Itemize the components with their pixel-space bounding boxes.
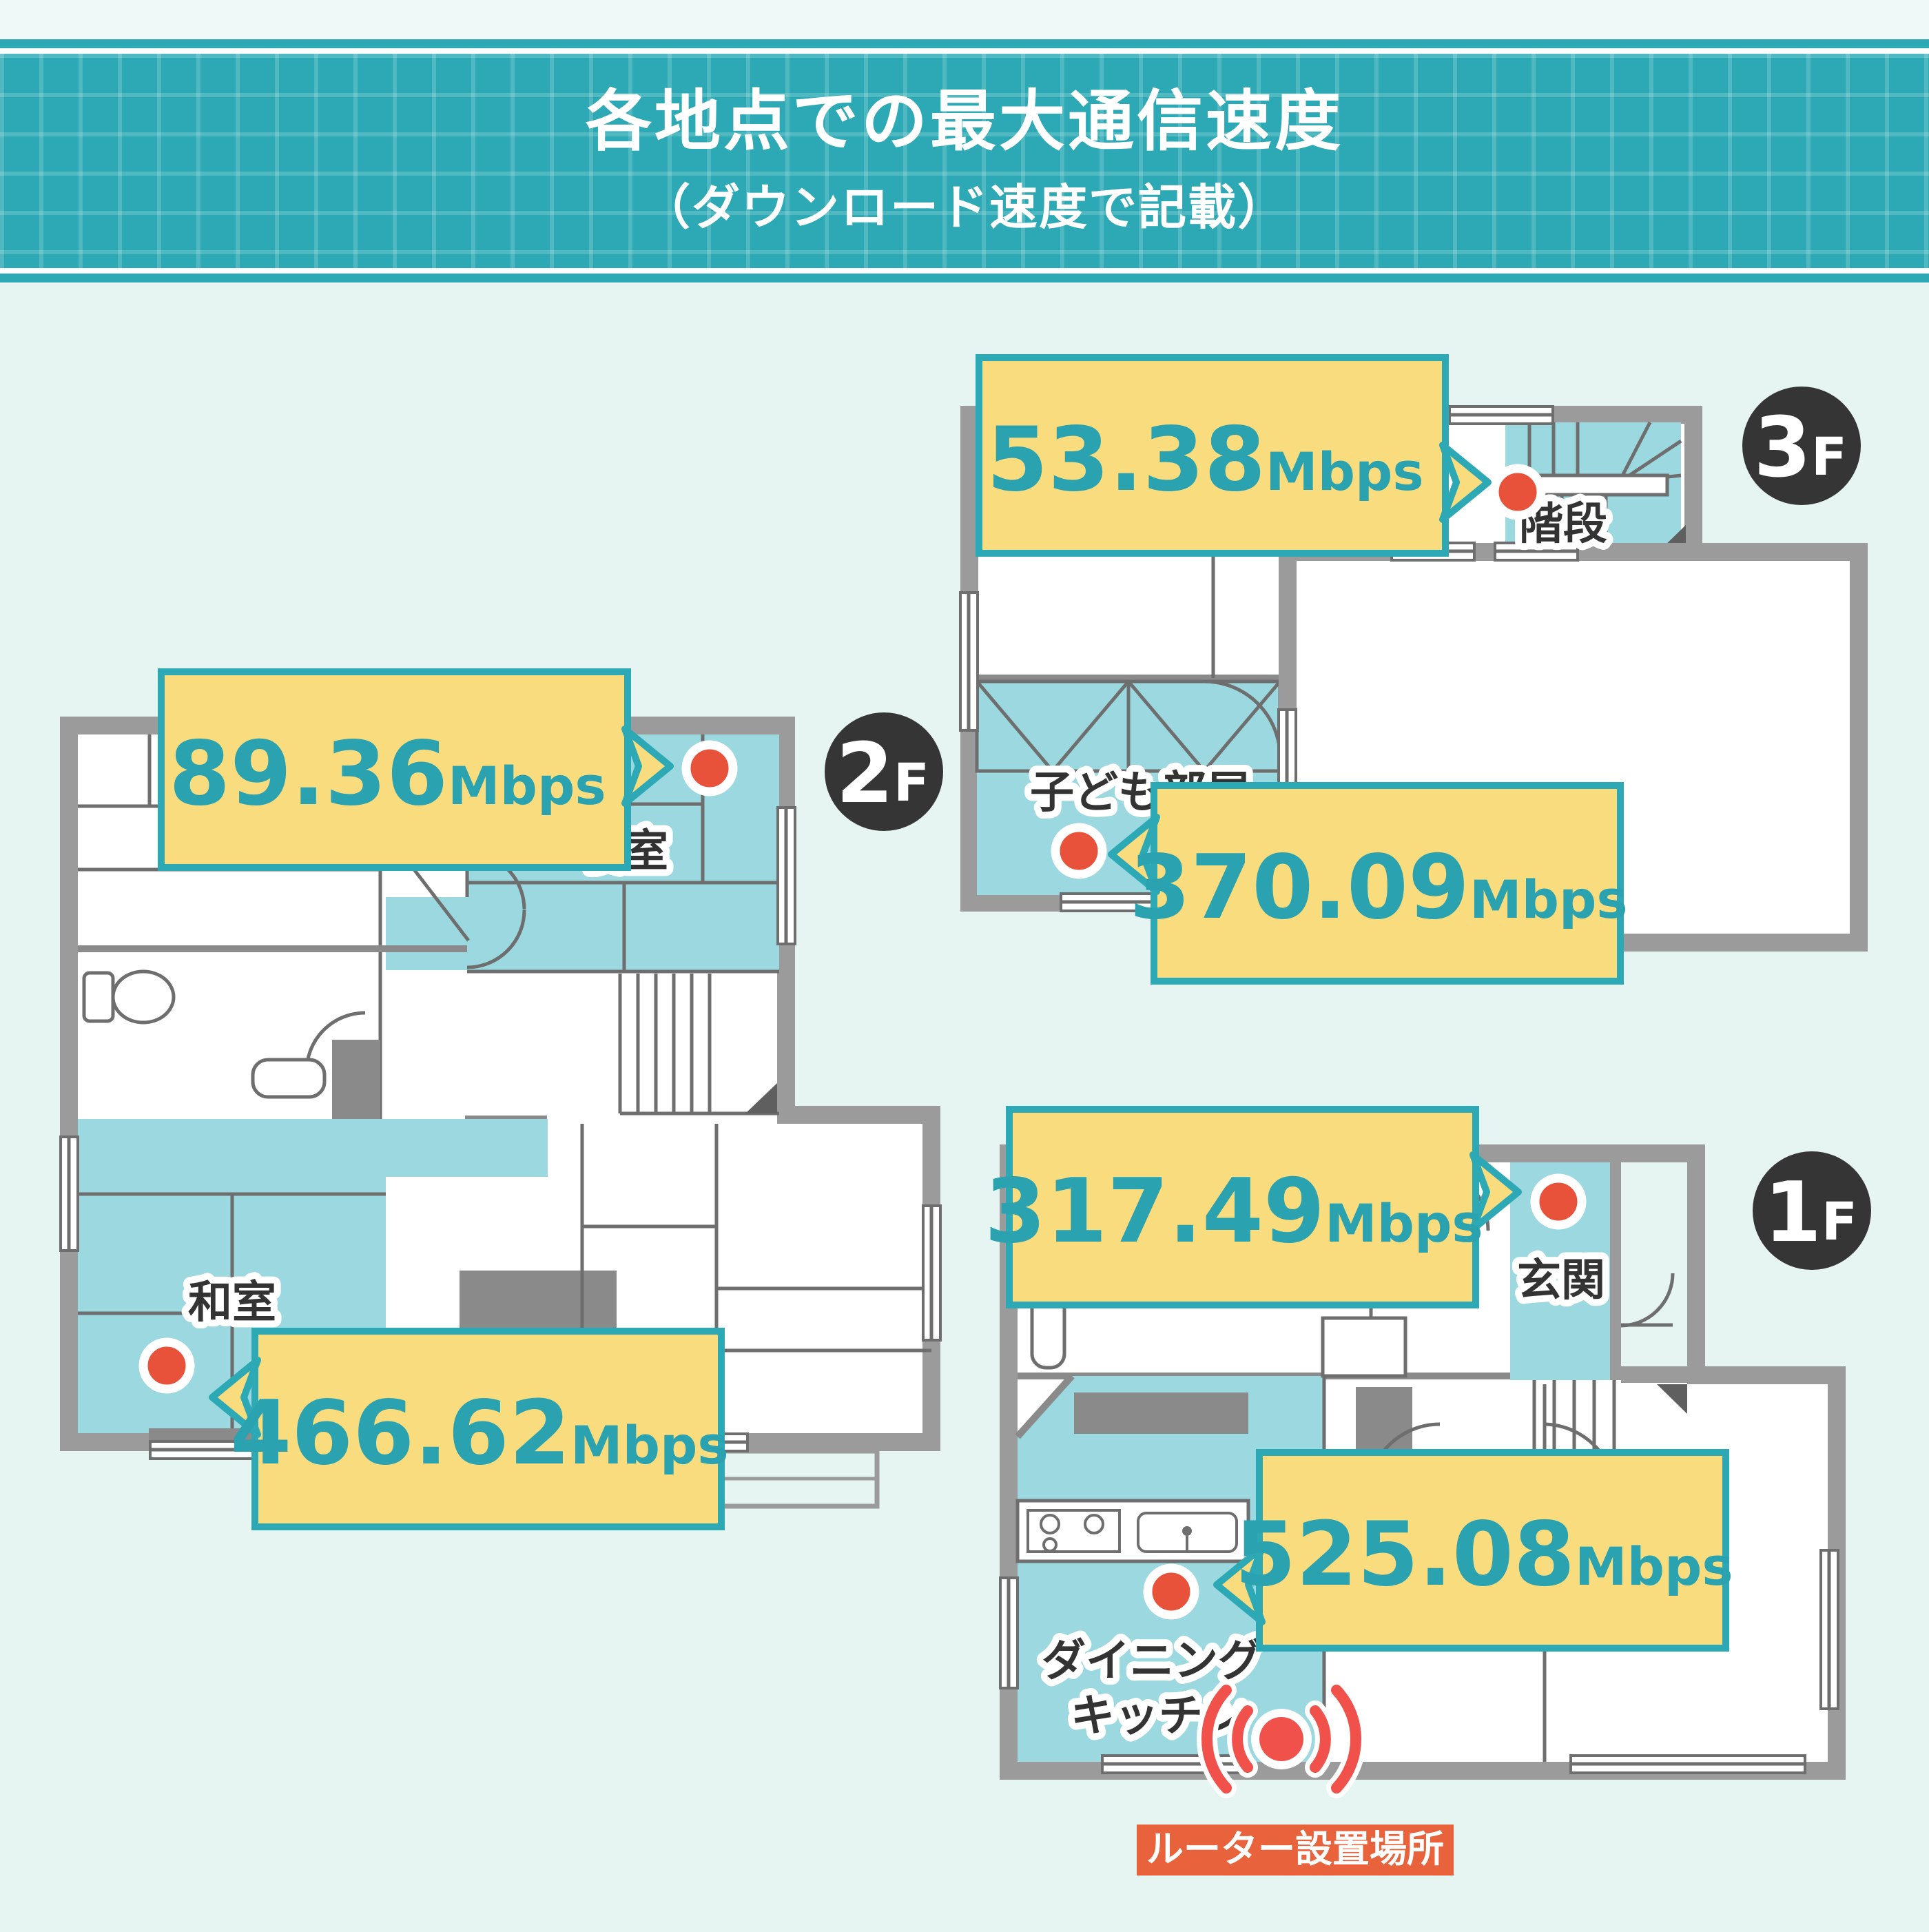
header-gap-bottom [0,268,1929,274]
header-gap-top [0,48,1929,54]
speed-value: 89.36 [169,723,448,825]
dot-icon-1f-dining [1148,1568,1195,1615]
badge-num: 3 [1754,400,1812,496]
floorplans-svg: 階段 子ども部屋 53.38 Mbps 370.09 Mbps 3 F [0,0,1929,1929]
header-rule-top [0,39,1929,48]
speed-unit: Mbps [1575,1536,1733,1597]
speed-bubble-2f-japanese-room: 466.62 Mbps [212,1331,729,1527]
badge-suffix: F [1822,1191,1857,1252]
dot-icon-1f-entrance [1535,1178,1582,1225]
dot-icon-3f-stairs [1494,469,1541,515]
speed-value: 466.62 [230,1382,570,1485]
speed-bubble-1f-dining: 525.08 Mbps [1217,1452,1733,1648]
floorplan-2f: 寝室 和室 89.36 Mbps 466.62 Mbps 2 F [61,672,943,1527]
2f-bedroom-entry [386,897,467,970]
speed-value: 53.38 [987,409,1266,511]
floor-badge-2f: 2 F [825,712,943,831]
page-subtitle: （ダウンロード速度で記載） [642,169,1287,238]
infographic-canvas: 階段 子ども部屋 53.38 Mbps 370.09 Mbps 3 F [0,0,1929,1929]
2f-japanese-room-label: 和室 [188,1277,276,1328]
1f-entrance-label: 玄関 [1517,1255,1605,1306]
top-strip [0,0,1929,39]
dot-icon-2f-bedroom [686,745,733,792]
1f-entrance-alcove [1621,1162,1687,1366]
1f-counter-block [1074,1393,1248,1434]
speed-value: 525.08 [1235,1503,1575,1606]
dot-icon-2f-japanese-room [143,1342,190,1389]
2f-toilet [84,972,174,1022]
speed-bubble-3f-kids-room: 370.09 Mbps [1111,785,1628,981]
header-banner: 各地点での最大通信速度 （ダウンロード速度で記載） [0,54,1929,268]
badge-num: 2 [836,726,894,822]
page-title: 各地点での最大通信速度 [586,83,1343,159]
1f-step-wall [1621,1366,1698,1383]
dot-icon-3f-kids-room [1055,828,1102,874]
2f-bathtub [253,1060,324,1097]
speed-bubble-1f-entrance: 317.49 Mbps [984,1109,1518,1305]
2f-block [332,1040,380,1119]
badge-suffix: F [894,752,929,813]
1f-fridge [1323,1318,1405,1376]
router-location-label: ルーター設置場所 [1137,1825,1454,1876]
speed-unit: Mbps [448,755,606,816]
floor-badge-3f: 3 F [1742,387,1861,505]
speed-unit: Mbps [1266,441,1424,502]
2f-block [460,1271,617,1335]
header-rule-bottom [0,274,1929,282]
speed-bubble-3f-stairs: 53.38 Mbps [979,358,1488,553]
floorplan-3f: 階段 子ども部屋 53.38 Mbps 370.09 Mbps 3 F [960,358,1861,981]
speed-unit: Mbps [570,1415,729,1476]
1f-kitchen-counter [1018,1501,1248,1561]
speed-value: 317.49 [984,1160,1325,1263]
badge-num: 1 [1764,1165,1822,1261]
floorplan-1f: 玄関 ダイニング キッチン 317.49 Mbps 525.08 Mbps [984,1109,1871,1876]
badge-suffix: F [1811,426,1847,487]
floor-badge-1f: 1 F [1753,1151,1871,1270]
1f-dining-label-line1: ダイニング [1042,1636,1262,1687]
speed-unit: Mbps [1325,1193,1483,1254]
speed-unit: Mbps [1469,869,1628,930]
1f-entrance-wall [1610,1162,1621,1380]
speed-value: 370.09 [1129,836,1469,939]
speed-bubble-2f-bedroom: 89.36 Mbps [161,672,670,867]
router-label-text: ルーター設置場所 [1146,1827,1444,1871]
